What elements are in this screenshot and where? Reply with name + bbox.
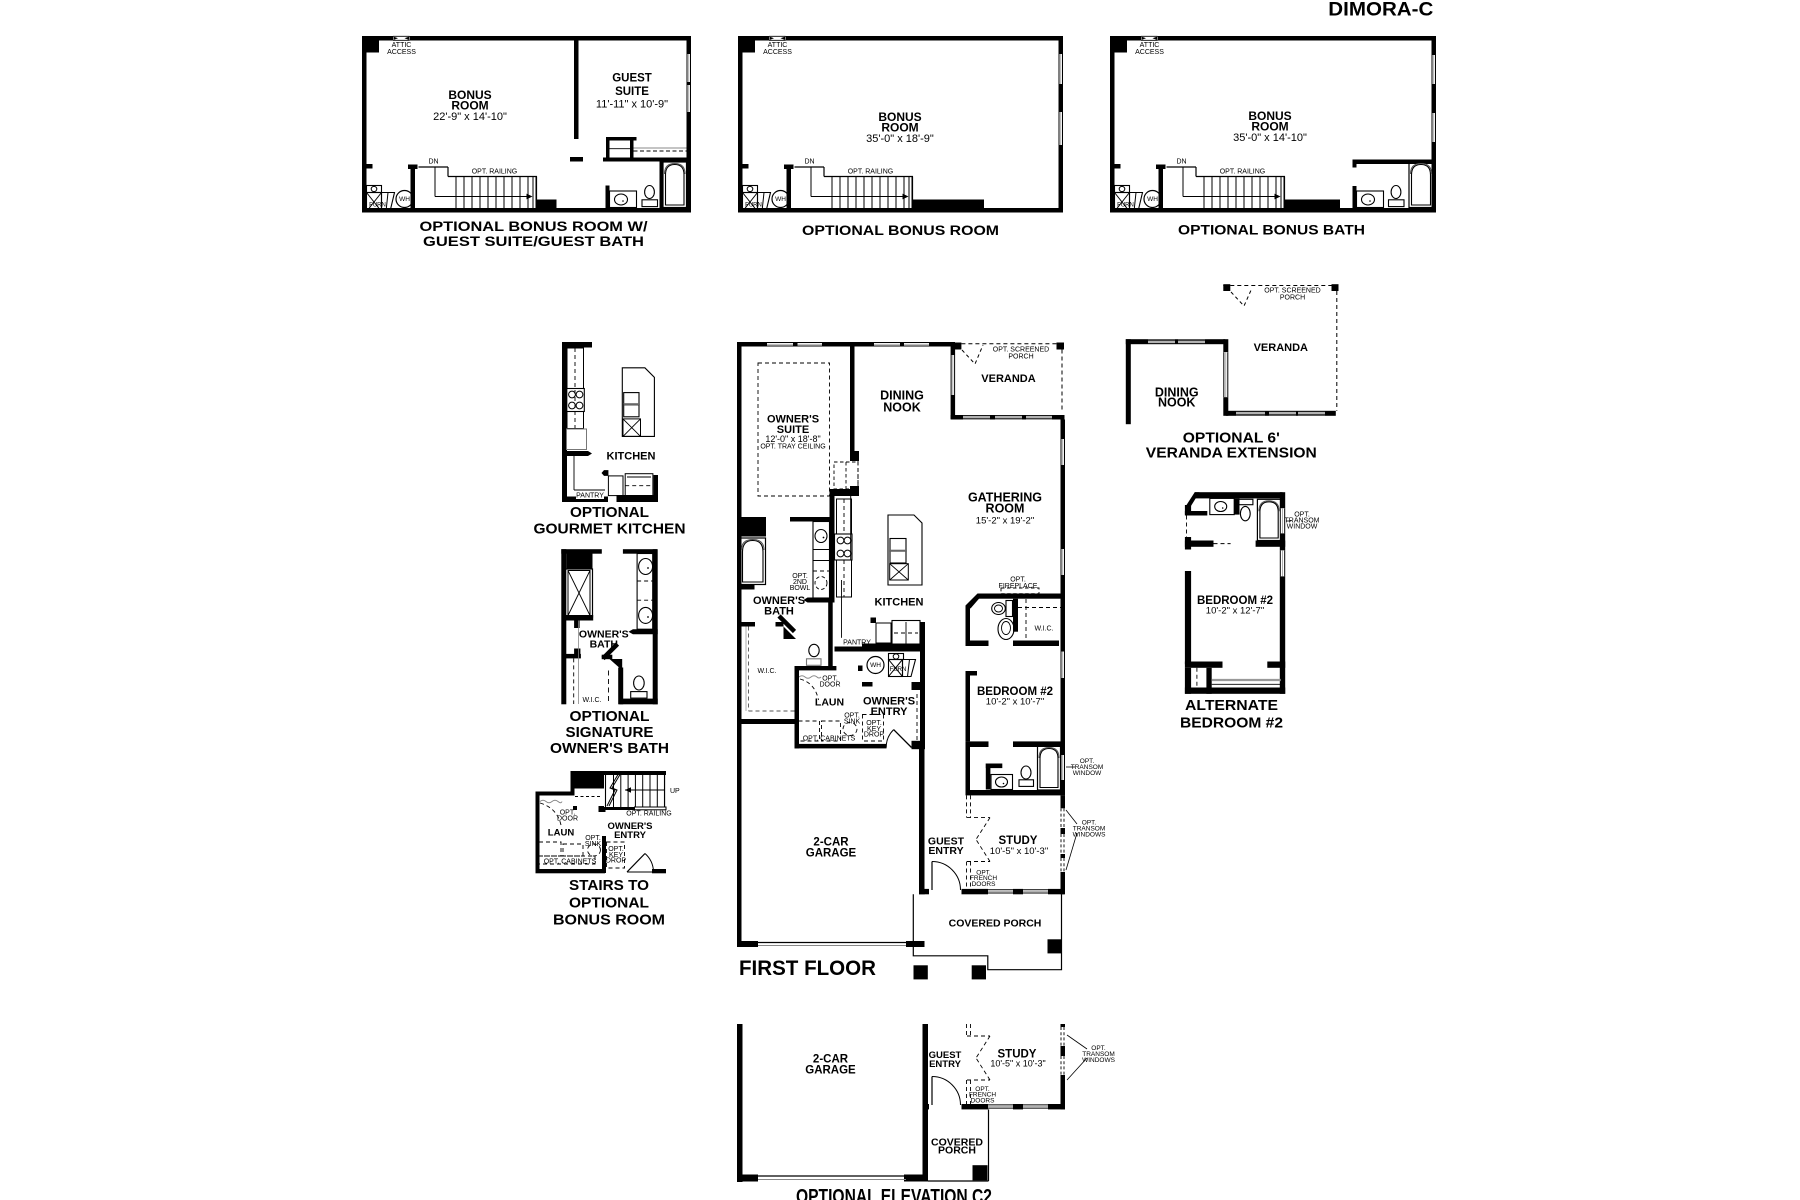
svg-text:OPTIONAL: OPTIONAL — [570, 504, 649, 521]
svg-text:SINK: SINK — [585, 841, 602, 848]
svg-text:VERANDA EXTENSION: VERANDA EXTENSION — [1146, 445, 1317, 462]
svg-text:GARAGE: GARAGE — [805, 1064, 856, 1076]
svg-text:DROP: DROP — [606, 858, 627, 865]
svg-text:W.I.C.: W.I.C. — [582, 697, 601, 704]
svg-text:PANTRY: PANTRY — [576, 493, 604, 500]
svg-text:DOOR: DOOR — [820, 682, 841, 689]
svg-text:OPT. CABINETS: OPT. CABINETS — [803, 736, 856, 743]
svg-text:KITCHEN: KITCHEN — [875, 597, 924, 609]
svg-text:FURN: FURN — [369, 203, 386, 209]
svg-text:35'-0" x 14'-10": 35'-0" x 14'-10" — [1233, 132, 1307, 144]
svg-text:OPT. CABINETS: OPT. CABINETS — [544, 859, 597, 866]
svg-text:OPT. SCREENED: OPT. SCREENED — [993, 347, 1049, 354]
svg-text:W.I.C.: W.I.C. — [757, 668, 776, 675]
svg-text:12'-0" x 18'-8": 12'-0" x 18'-8" — [765, 434, 820, 444]
svg-text:KITCHEN: KITCHEN — [607, 451, 656, 463]
svg-text:SIGNATURE: SIGNATURE — [566, 724, 654, 741]
svg-text:ALTERNATE: ALTERNATE — [1185, 697, 1278, 714]
svg-text:OPTIONAL ELEVATION C2: OPTIONAL ELEVATION C2 — [796, 1185, 992, 1200]
svg-text:WINDOW: WINDOW — [1073, 770, 1102, 777]
svg-text:DN: DN — [1176, 159, 1186, 166]
svg-text:OPT. RAILING: OPT. RAILING — [626, 811, 672, 818]
svg-text:WH: WH — [399, 196, 410, 203]
svg-text:WH: WH — [870, 662, 881, 669]
svg-text:15'-2" x 19'-2": 15'-2" x 19'-2" — [976, 516, 1034, 527]
svg-text:DOORS: DOORS — [972, 881, 997, 888]
svg-text:ACCESS: ACCESS — [763, 49, 792, 56]
svg-text:GUEST: GUEST — [612, 73, 652, 85]
svg-text:ACCESS: ACCESS — [387, 49, 416, 56]
svg-text:OPT. RAILING: OPT. RAILING — [1220, 169, 1266, 176]
svg-text:WINDOWS: WINDOWS — [1082, 1057, 1116, 1064]
svg-text:FIREPLACE: FIREPLACE — [999, 583, 1038, 590]
svg-text:ENTRY: ENTRY — [871, 706, 909, 718]
svg-text:DOOR: DOOR — [557, 816, 578, 823]
svg-text:ENTRY: ENTRY — [928, 845, 963, 857]
svg-text:10'-5" x 10'-3": 10'-5" x 10'-3" — [990, 1059, 1045, 1069]
svg-text:DIMORA-C: DIMORA-C — [1328, 0, 1433, 21]
svg-text:22'-9" x 14'-10": 22'-9" x 14'-10" — [433, 111, 507, 123]
svg-text:WINDOW: WINDOW — [1287, 524, 1318, 531]
svg-text:WH: WH — [1147, 196, 1158, 203]
svg-text:ROOM: ROOM — [986, 502, 1025, 516]
svg-text:WH: WH — [775, 196, 786, 203]
svg-text:BEDROOM #2: BEDROOM #2 — [1180, 714, 1283, 731]
svg-text:OWNER'S BATH: OWNER'S BATH — [550, 740, 669, 757]
svg-text:FURN: FURN — [745, 203, 762, 209]
svg-text:ACCESS: ACCESS — [1135, 49, 1164, 56]
svg-text:OPTIONAL: OPTIONAL — [570, 708, 650, 725]
svg-text:BOWL: BOWL — [790, 585, 811, 592]
svg-text:FURN: FURN — [1117, 203, 1134, 209]
svg-text:BATH: BATH — [764, 606, 794, 618]
svg-text:OPT. SCREENED: OPT. SCREENED — [1264, 288, 1320, 295]
svg-text:OPT. TRAY CEILING: OPT. TRAY CEILING — [760, 444, 825, 451]
svg-text:OPTIONAL BONUS ROOM W/: OPTIONAL BONUS ROOM W/ — [420, 219, 648, 234]
svg-text:LAUN: LAUN — [815, 697, 844, 709]
svg-text:NOOK: NOOK — [883, 401, 921, 415]
svg-text:PORCH: PORCH — [938, 1145, 976, 1157]
svg-text:STAIRS TO: STAIRS TO — [569, 877, 649, 894]
svg-text:VERANDA: VERANDA — [1254, 342, 1308, 354]
svg-text:10'-2" x 10'-7": 10'-2" x 10'-7" — [986, 697, 1044, 708]
svg-text:GARAGE: GARAGE — [806, 847, 857, 859]
svg-text:DN: DN — [428, 159, 438, 166]
svg-text:BONUS ROOM: BONUS ROOM — [553, 912, 665, 929]
svg-text:ENTRY: ENTRY — [929, 1059, 962, 1070]
svg-text:FURN: FURN — [890, 667, 907, 673]
svg-text:W.I.C.: W.I.C. — [1034, 626, 1053, 633]
svg-text:UP: UP — [670, 788, 680, 795]
svg-text:SUITE: SUITE — [615, 86, 649, 98]
svg-text:FIRST FLOOR: FIRST FLOOR — [739, 956, 876, 980]
svg-text:OPT. RAILING: OPT. RAILING — [848, 169, 894, 176]
svg-text:PORCH: PORCH — [1280, 295, 1305, 302]
svg-text:SINK: SINK — [844, 719, 861, 726]
svg-text:GOURMET KITCHEN: GOURMET KITCHEN — [534, 521, 686, 538]
svg-text:VERANDA: VERANDA — [981, 373, 1035, 385]
svg-text:OPTIONAL BONUS BATH: OPTIONAL BONUS BATH — [1178, 223, 1365, 238]
svg-text:LAUN: LAUN — [548, 828, 575, 839]
svg-text:OPTIONAL BONUS ROOM: OPTIONAL BONUS ROOM — [802, 223, 999, 238]
svg-text:35'-0" x 18'-9": 35'-0" x 18'-9" — [866, 133, 934, 145]
svg-text:PORCH: PORCH — [1008, 354, 1033, 361]
svg-text:10'-2" x 12'-7": 10'-2" x 12'-7" — [1206, 606, 1264, 617]
svg-text:OPTIONAL: OPTIONAL — [569, 894, 649, 911]
svg-text:ENTRY: ENTRY — [614, 830, 647, 841]
svg-text:11'-11" x 10'-9": 11'-11" x 10'-9" — [596, 99, 668, 111]
svg-text:WINDOWS: WINDOWS — [1073, 831, 1107, 838]
svg-text:OPT. RAILING: OPT. RAILING — [472, 169, 518, 176]
svg-text:NOOK: NOOK — [1158, 396, 1196, 410]
svg-text:DN: DN — [804, 159, 814, 166]
svg-text:DROP: DROP — [864, 732, 885, 739]
svg-text:COVERED PORCH: COVERED PORCH — [949, 918, 1042, 930]
svg-text:10'-5" x 10'-3": 10'-5" x 10'-3" — [990, 846, 1048, 857]
svg-text:DOORS: DOORS — [971, 1098, 996, 1105]
svg-text:GUEST SUITE/GUEST BATH: GUEST SUITE/GUEST BATH — [423, 234, 644, 249]
